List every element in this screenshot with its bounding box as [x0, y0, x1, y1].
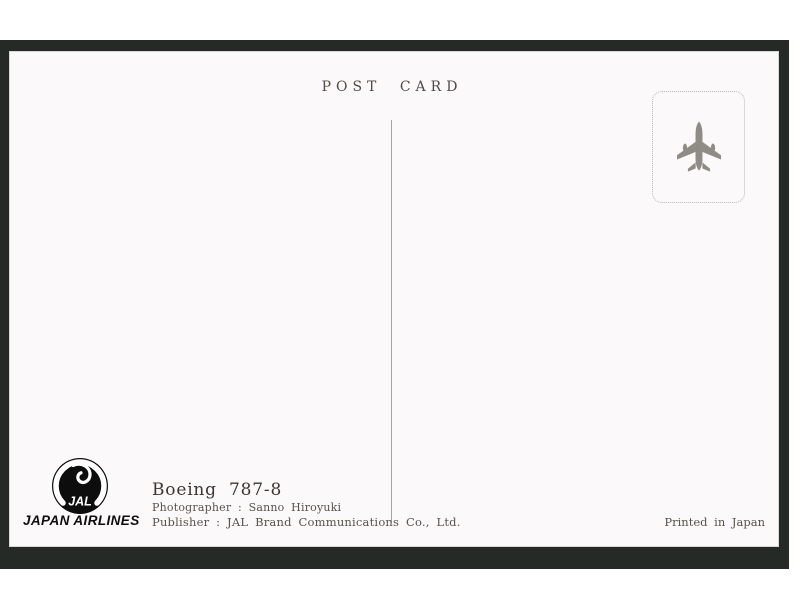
jal-logo-text: JAL — [68, 495, 92, 509]
credits-block: Boeing 787-8 Photographer : Sanno Hiroyu… — [152, 481, 341, 515]
postcard-back: POST CARD — [10, 52, 778, 546]
printed-in-japan-note: Printed in Japan — [664, 515, 765, 529]
photographer-credit: Photographer : Sanno Hiroyuki — [152, 500, 341, 515]
publisher-credit: Publisher : JAL Brand Communications Co.… — [152, 515, 461, 529]
jal-crane-logo-icon: JAL — [52, 458, 108, 514]
post-card-title: POST CARD — [322, 79, 463, 95]
postcard-frame: POST CARD — [0, 40, 789, 569]
stamp-box — [652, 91, 745, 203]
airplane-top-view-icon — [675, 120, 723, 174]
aircraft-title: Boeing 787-8 — [152, 481, 341, 500]
airline-name: JAPAN AIRLINES — [23, 513, 140, 528]
address-divider-line — [391, 120, 392, 523]
postcard-photo-page: POST CARD — [0, 0, 800, 600]
